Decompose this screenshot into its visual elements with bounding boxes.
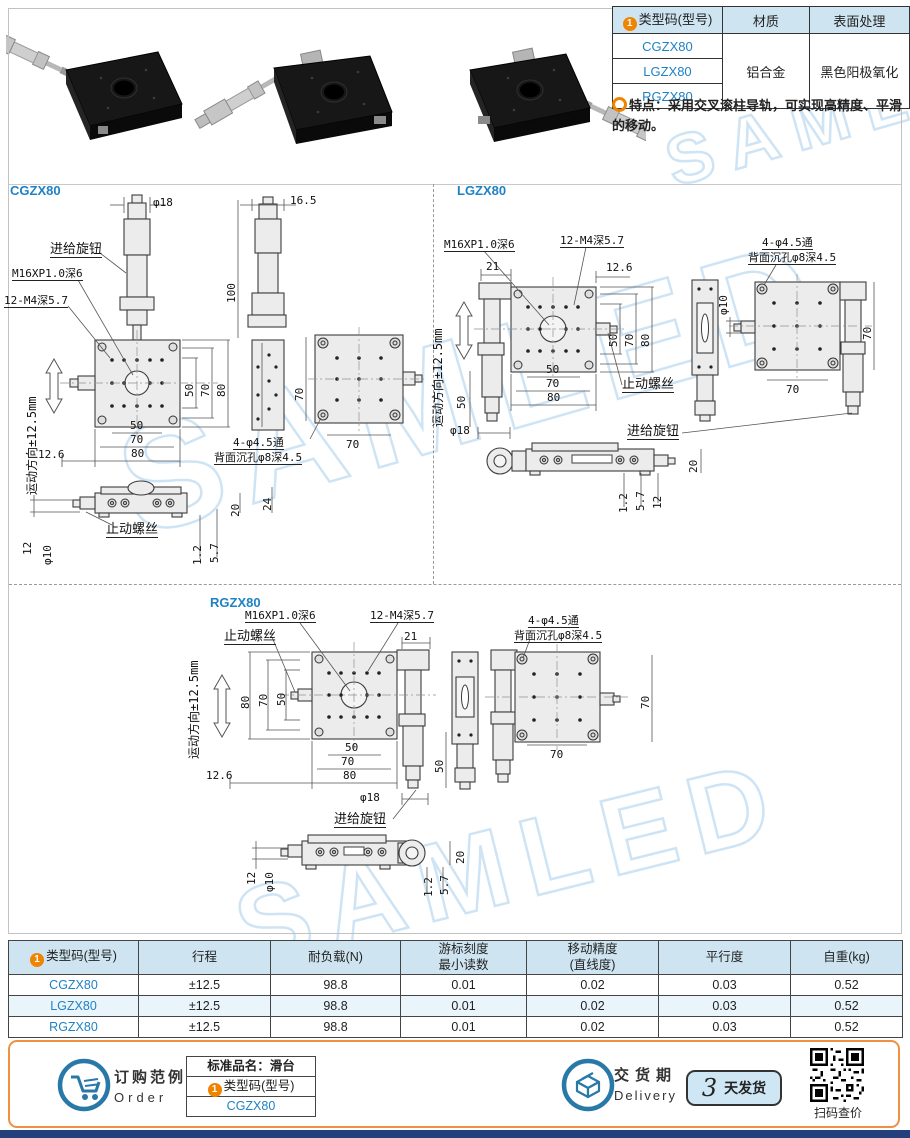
load-value: 98.8 (271, 975, 401, 996)
dim-label: 12.6 (206, 770, 233, 781)
qr-caption: 扫码查价 (806, 1104, 870, 1121)
delivery-days: 3 (702, 1074, 717, 1102)
dim-label: 80 (547, 392, 560, 403)
dim-label: 进给旋钮 (334, 813, 386, 828)
spec-row-rgzx80: RGZX80 ±12.5 98.8 0.01 0.02 0.03 0.52 (9, 1017, 903, 1038)
dim-label: 12.6 (38, 449, 65, 460)
spec-col-travel: 行程 (139, 941, 271, 975)
dim-label: 70 (294, 388, 305, 401)
dim-label: φ10 (718, 295, 729, 315)
dim-label: 背面沉孔φ8深4.5 (214, 452, 302, 465)
feature-note: 特点：采用交叉滚柱导轨，可实现高精度、平滑的移动。 (612, 96, 902, 135)
spec-col-weight: 自重(kg) (791, 941, 903, 975)
dim-label: 12 (22, 542, 33, 555)
vernier-value: 0.01 (401, 996, 527, 1017)
spec-col-accuracy: 移动精度(直线度) (527, 941, 659, 975)
page-bottom-bar (0, 1130, 910, 1138)
dim-label: 80 (216, 384, 227, 397)
cart-icon (56, 1057, 112, 1113)
parallel-value: 0.03 (659, 996, 791, 1017)
dim-label: φ10 (264, 872, 275, 892)
dim-label: 24 (262, 498, 273, 511)
circle-1-icon: 1 (30, 953, 44, 967)
dim-label: 70 (258, 694, 269, 707)
circle-1-icon: 1 (208, 1083, 222, 1097)
delivery-unit: 天发货 (724, 1078, 766, 1098)
spec-col-load: 耐负载(N) (271, 941, 401, 975)
travel-value: ±12.5 (139, 975, 271, 996)
dim-label: 50 (276, 693, 287, 706)
dim-label: 70 (786, 384, 799, 395)
dim-label: 50 (184, 384, 195, 397)
circle-1-icon: 1 (623, 17, 637, 31)
weight-value: 0.52 (791, 996, 903, 1017)
dim-label: 20 (688, 460, 699, 473)
accuracy-value: 0.02 (527, 996, 659, 1017)
col-header-surface: 表面处理 (809, 7, 909, 34)
dim-label: 12.6 (606, 262, 633, 273)
dim-label: 1.2 (192, 545, 203, 565)
delivery-label: 交货期 Delivery (614, 1064, 677, 1103)
dim-label: 80 (343, 770, 356, 781)
dim-label: 70 (862, 327, 873, 340)
micrometer (478, 283, 511, 421)
feature-bullet-icon (612, 97, 627, 112)
model-link-cgzx80[interactable]: CGZX80 (613, 34, 723, 59)
model-link-cgzx80[interactable]: CGZX80 (9, 975, 139, 996)
dim-label: 运动方向±12.5mm (26, 396, 38, 495)
spec-col-type: 1类型码(型号) (9, 941, 139, 975)
dim-label: 70 (200, 384, 211, 397)
vernier-value: 0.01 (401, 1017, 527, 1038)
dim-label: 运动方向±12.5mm (188, 660, 200, 759)
dim-label: φ18 (153, 197, 173, 208)
dim-label: 21 (404, 631, 417, 642)
dim-label: 4-φ4.5通 (233, 437, 284, 450)
col-header-type: 1类型码(型号) (613, 7, 723, 34)
dim-label: 70 (550, 749, 563, 760)
dim-label: 80 (640, 334, 651, 347)
dim-label: 20 (230, 504, 241, 517)
dim-label: 止动螺丝 (224, 630, 276, 645)
side-view (452, 652, 478, 789)
dim-label: 50 (345, 742, 358, 753)
vernier-value: 0.01 (401, 975, 527, 996)
lgzx80-section: LGZX80 (424, 175, 892, 587)
dim-label: 16.5 (290, 195, 317, 206)
bottom-view (487, 443, 675, 475)
dim-label: M16XP1.0深6 (12, 268, 83, 281)
catalog-page: SAMLED SAMLED SAMLED (0, 0, 910, 1138)
accuracy-value: 0.02 (527, 975, 659, 996)
dim-label: 1.2 (618, 493, 629, 513)
dim-label: 100 (226, 283, 237, 303)
dim-label: 12-M4深5.7 (370, 610, 434, 623)
cgzx80-section: CGZX80 (0, 175, 424, 587)
spec-table: 1类型码(型号) 行程 耐负载(N) 游标刻度最小读数 移动精度(直线度) 平行… (8, 940, 903, 1038)
dim-label: 70 (546, 378, 559, 389)
dim-label: 20 (455, 851, 466, 864)
dim-label: 70 (624, 334, 635, 347)
weight-value: 0.52 (791, 975, 903, 996)
col-header-material: 材质 (722, 7, 809, 34)
dim-label: 12-M4深5.7 (4, 295, 68, 308)
order-footer: 订购范例 Order 标准品名：滑台 1类型码(型号) CGZX80 交货期 D… (8, 1040, 900, 1128)
dim-label: 50 (130, 420, 143, 431)
dim-label: 4-φ4.5通 (762, 237, 813, 250)
delivery-days-chip: 3 天发货 (686, 1070, 782, 1106)
standard-name: 标准品名：滑台 (187, 1057, 315, 1077)
side-view (692, 280, 718, 421)
dim-label: 背面沉孔φ8深4.5 (748, 252, 836, 265)
dim-label: 进给旋钮 (50, 243, 102, 258)
spec-col-parallel: 平行度 (659, 941, 791, 975)
cgzx80-drawing (0, 175, 424, 587)
bottom-view (281, 835, 425, 869)
spec-row-cgzx80: CGZX80 ±12.5 98.8 0.01 0.02 0.03 0.52 (9, 975, 903, 996)
dim-label: 70 (130, 434, 143, 445)
dim-label: 5.7 (439, 875, 450, 895)
dim-label: 背面沉孔φ8深4.5 (514, 630, 602, 643)
dim-label: 70 (346, 439, 359, 450)
dim-label: φ18 (450, 425, 470, 436)
dim-label: M16XP1.0深6 (444, 239, 515, 252)
dim-label: 止动螺丝 (106, 523, 158, 538)
type-code-label: 1类型码(型号) (187, 1077, 315, 1097)
lgzx80-title: LGZX80 (457, 183, 506, 198)
qr-code (810, 1048, 864, 1102)
dim-label: φ18 (360, 792, 380, 803)
parallel-value: 0.03 (659, 1017, 791, 1038)
load-value: 98.8 (271, 1017, 401, 1038)
weight-value: 0.52 (791, 1017, 903, 1038)
rgzx80-drawing (0, 587, 892, 924)
dim-label: 50 (546, 364, 559, 375)
spec-col-vernier: 游标刻度最小读数 (401, 941, 527, 975)
side-view (248, 197, 286, 430)
dim-label: φ10 (42, 545, 53, 565)
front-view (280, 642, 436, 788)
dim-label: 进给旋钮 (627, 425, 679, 440)
model-link-lgzx80[interactable]: LGZX80 (613, 59, 723, 84)
rgzx80-title: RGZX80 (210, 595, 261, 610)
travel-value: ±12.5 (139, 996, 271, 1017)
dim-label: M16XP1.0深6 (245, 610, 316, 623)
dim-label: 5.7 (209, 543, 220, 563)
example-model-code[interactable]: CGZX80 (187, 1097, 315, 1116)
dim-label: 12-M4深5.7 (560, 235, 624, 248)
dim-label: 5.7 (635, 491, 646, 511)
back-view (729, 274, 872, 414)
rgzx80-section: RGZX80 (0, 587, 892, 924)
back-view (485, 644, 628, 782)
dim-label: 21 (486, 261, 499, 272)
dim-label: 4-φ4.5通 (528, 615, 579, 628)
delivery-box-icon (560, 1057, 616, 1113)
spec-header-row: 1类型码(型号) 行程 耐负载(N) 游标刻度最小读数 移动精度(直线度) 平行… (9, 941, 903, 975)
model-link-lgzx80[interactable]: LGZX80 (9, 996, 139, 1017)
dim-label: 1.2 (423, 877, 434, 897)
dim-label: 12 (246, 872, 257, 885)
cgzx80-title: CGZX80 (10, 183, 61, 198)
dim-label: 70 (341, 756, 354, 767)
dim-label: 50 (434, 760, 445, 773)
dim-label: 50 (456, 396, 467, 409)
bottom-view (73, 481, 187, 517)
accuracy-value: 0.02 (527, 1017, 659, 1038)
type-material-table: 1类型码(型号) 材质 表面处理 CGZX80 铝合金 黑色阳极氧化 LGZX8… (612, 6, 910, 109)
travel-value: ±12.5 (139, 1017, 271, 1038)
back-view (308, 327, 424, 431)
dim-label: 12 (652, 496, 663, 509)
dim-label: 80 (131, 448, 144, 459)
dim-label: 止动螺丝 (622, 378, 674, 393)
model-link-rgzx80[interactable]: RGZX80 (9, 1017, 139, 1038)
micrometer (120, 195, 154, 340)
load-value: 98.8 (271, 996, 401, 1017)
dim-label: 50 (608, 334, 619, 347)
parallel-value: 0.03 (659, 975, 791, 996)
dim-label: 80 (240, 696, 251, 709)
order-example-label: 订购范例 Order (114, 1066, 186, 1105)
order-example-box: 标准品名：滑台 1类型码(型号) CGZX80 (186, 1056, 316, 1117)
dim-label: 运动方向±12.5mm (432, 328, 444, 427)
dim-label: 70 (640, 696, 651, 709)
spec-row-lgzx80: LGZX80 ±12.5 98.8 0.01 0.02 0.03 0.52 (9, 996, 903, 1017)
